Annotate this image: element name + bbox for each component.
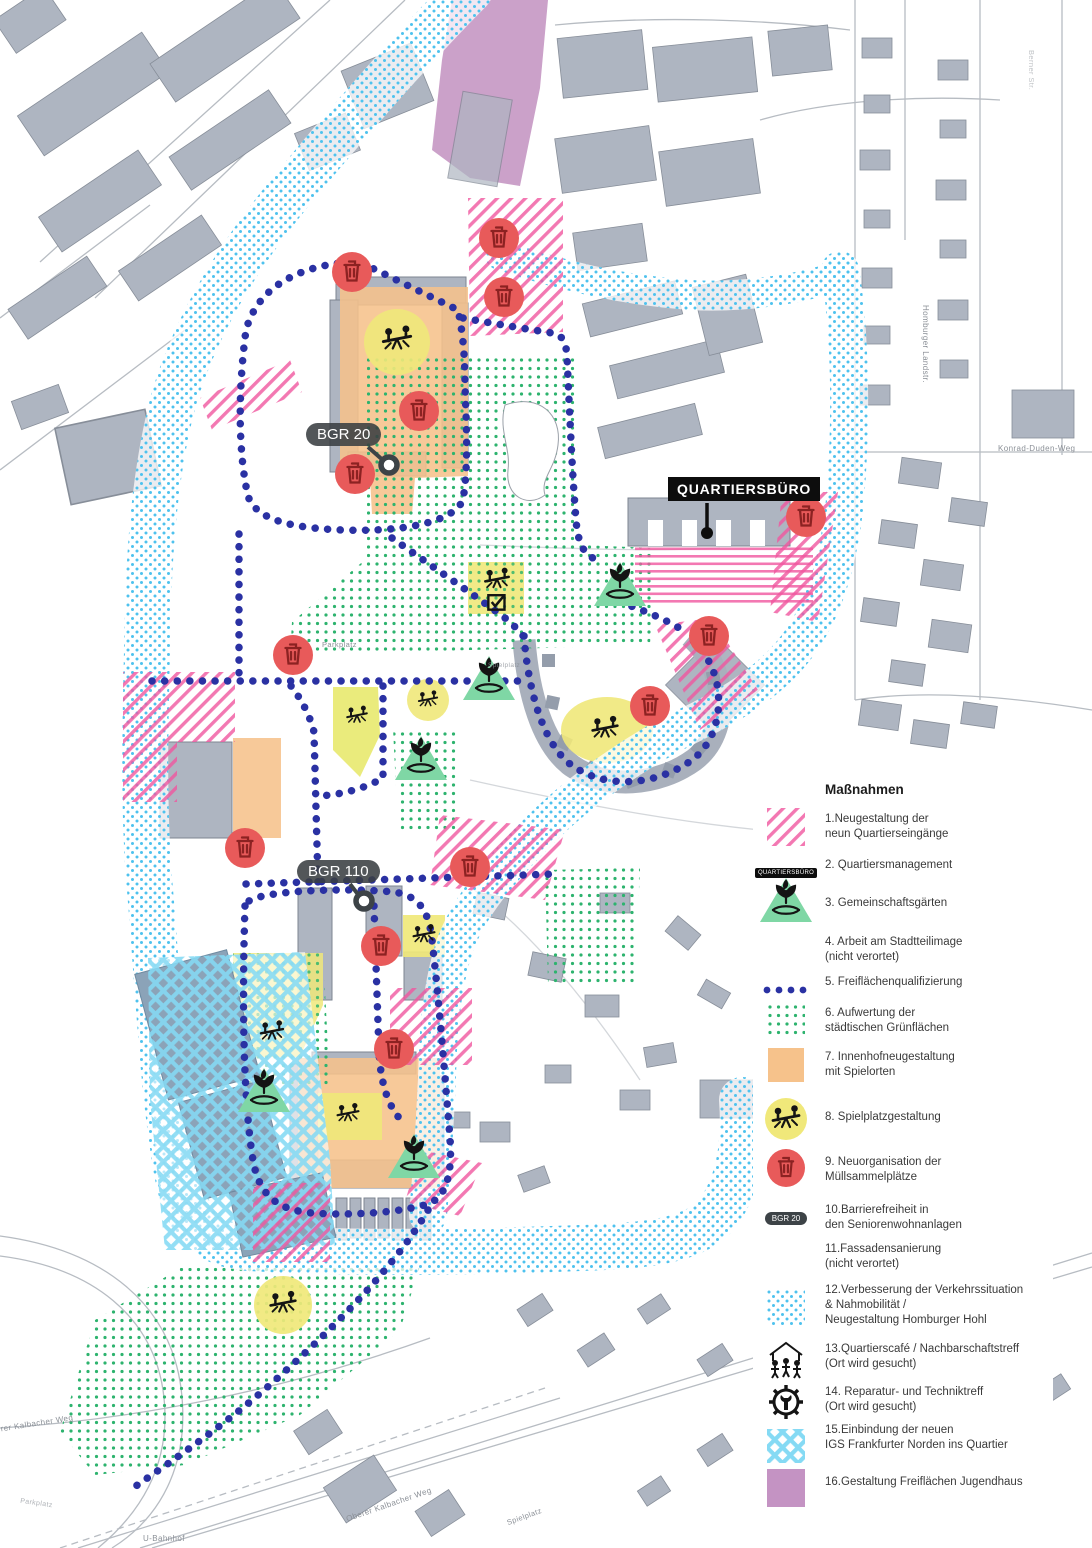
legend-panel: Maßnahmen 1.Neugestaltung der neun Quart… bbox=[753, 770, 1053, 1512]
bgr20-anchor-ring bbox=[381, 457, 397, 473]
trash-marker-icon bbox=[361, 926, 401, 966]
trash-marker-icon bbox=[450, 847, 490, 887]
legend-title: Maßnahmen bbox=[825, 782, 904, 797]
house-people-icon bbox=[757, 1336, 815, 1382]
bgr-pill-icon: BGR 20 bbox=[757, 1195, 815, 1241]
playground-circle-icon bbox=[757, 1096, 815, 1142]
street-label-parkplatz: Parkplatz bbox=[322, 640, 357, 649]
bgr110-callout: BGR 110 bbox=[297, 860, 380, 883]
trash-marker-icon bbox=[335, 454, 375, 494]
quartiersbuero-callout: QUARTIERSBÜRO bbox=[668, 477, 820, 501]
garden-triangle-icon bbox=[757, 878, 815, 924]
trash-marker-icon bbox=[630, 686, 670, 726]
trash-marker-icon bbox=[479, 218, 519, 258]
trash-marker-icon bbox=[399, 391, 439, 431]
pink-hatch-swatch bbox=[757, 804, 815, 850]
quartiersbuero-anchor-dot bbox=[701, 527, 713, 539]
trash-marker-icon bbox=[332, 252, 372, 292]
legend-num: 1. bbox=[825, 813, 835, 825]
purple-swatch bbox=[757, 1465, 815, 1511]
trash-marker-icon bbox=[689, 616, 729, 656]
trash-marker-icon bbox=[273, 635, 313, 675]
street-label-konrad-duden-weg: Konrad-Duden-Weg bbox=[998, 444, 1075, 453]
street-label-spielplatz-mid: Spielplatz bbox=[488, 662, 520, 669]
trash-marker-icon bbox=[374, 1029, 414, 1069]
trash-marker-icon bbox=[484, 277, 524, 317]
trash-circle-icon bbox=[757, 1145, 815, 1191]
trash-marker-icon bbox=[786, 497, 826, 537]
legend-label: Neugestaltung der neun Quartierseingänge bbox=[825, 813, 948, 840]
cyan-dots-swatch bbox=[757, 1285, 815, 1331]
street-label-berner-str: Berner Str. bbox=[1027, 50, 1036, 90]
street-label-u-bahnhof: U-Bahnhof bbox=[143, 1534, 185, 1543]
trash-marker-icon bbox=[225, 828, 265, 868]
orange-swatch bbox=[757, 1042, 815, 1088]
cyan-check-swatch bbox=[757, 1423, 815, 1469]
bgr110-anchor-ring bbox=[356, 893, 372, 909]
gear-wrench-icon bbox=[757, 1379, 815, 1425]
bgr20-callout: BGR 20 bbox=[306, 423, 381, 446]
urban-plan-map: Parkplatz Spielplatz Homburger Landstr. … bbox=[0, 0, 1092, 1548]
green-dots-swatch bbox=[757, 998, 815, 1044]
street-label-homburger-landstr: Homburger Landstr. bbox=[921, 305, 930, 383]
